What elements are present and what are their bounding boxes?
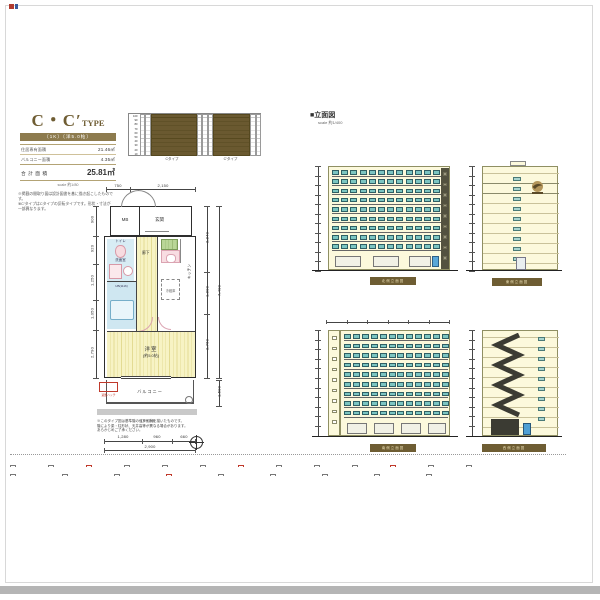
window-cell [424,334,431,339]
legend-item: ・・・・・・・・・・ [426,474,469,476]
legend-item: ・・・・・・・・・・ [10,474,53,476]
dim-left-5: 2,790 [90,343,95,363]
tick-mark [315,397,321,398]
ground-opening [373,256,399,267]
window-cell [387,235,394,240]
railing-line [344,369,448,370]
registration-mark-blue [15,4,18,9]
window-cell [362,363,369,368]
window-cell [369,226,376,231]
dim-tick [204,272,210,273]
tick-mark [469,349,475,350]
window-cell [371,372,378,377]
window-cell [362,392,369,397]
tick-mark [315,261,321,262]
window-cell [332,368,337,372]
railing-line [332,176,442,177]
compass-icon [189,435,204,450]
window-cell [332,198,339,203]
balcony-label: バルコニー [107,389,193,395]
window-cell [396,244,403,249]
entrance-door [432,256,439,267]
tick-mark [469,388,475,389]
tick-mark [469,233,475,234]
stove [161,239,178,250]
railing-line [332,250,442,251]
window-cell [396,170,403,175]
tick-mark [315,416,321,417]
window-cell [424,207,431,212]
window-cell [380,411,387,416]
window-cell [415,392,422,397]
level-rail [318,330,319,436]
window-cell [353,382,360,387]
plan-type-title-main: C・C′ [31,111,81,130]
window-cell [406,334,413,339]
dim-tick [204,314,210,315]
tick-mark [315,378,321,379]
window-cell [442,392,449,397]
tick-mark [315,242,321,243]
window-cell [396,198,403,203]
window-cell [350,217,357,222]
level-rail [472,166,473,270]
ground-line [312,270,458,271]
window-cell [433,344,440,349]
spec-total-row: 合 計 面 積 25.81㎡ [20,165,116,181]
window-cell [433,217,440,222]
spec-label: バルコニー面積 [21,157,50,163]
window-cell [433,226,440,231]
washbasin [123,266,133,276]
western-room: 洋室 (約5.0帖) [107,331,195,377]
window-cell [353,344,360,349]
spec-row: 住居専有面積 21.46㎡ [20,145,116,155]
window-grid [344,334,448,421]
window-cell [424,353,431,358]
plan-type-title: C・C′TYPE [18,106,118,131]
window-cell [371,382,378,387]
railing-line [332,232,442,233]
railing-line [344,340,448,341]
legend-symbol-icon [426,474,432,476]
window-cell [406,344,413,349]
window-cell [538,347,545,351]
window-cell [415,334,422,339]
plan-type-title-suffix: TYPE [82,118,105,128]
dim-line-top [106,189,196,190]
window-cell [397,392,404,397]
legend-symbol-icon [322,474,328,476]
window-cell [406,198,413,203]
railing-line [332,185,442,186]
window-cell [443,256,447,260]
window-cell [397,344,404,349]
window-cell [397,334,404,339]
tick-mark [315,176,321,177]
window-cell [350,189,357,194]
legend-label: ・・・・・・・・・・ [434,475,469,476]
window-cell [442,411,449,416]
key-plan-floor-label: 1F [129,152,139,156]
window-cell [397,382,404,387]
fridge-space: 冷蔵庫 [161,279,180,300]
spec-row: バルコニー面積 4.35㎡ [20,155,116,165]
registration-mark-red [9,4,14,9]
window-cell [406,363,413,368]
window-cell [371,401,378,406]
window-cell [380,344,387,349]
window-cell [378,198,385,203]
window-cell [387,226,394,231]
window-cell [360,217,367,222]
legend-item: ・・・・・・・・・・ [374,474,417,476]
window-cell [353,411,360,416]
tick-mark [408,320,409,324]
window-cell [369,170,376,175]
window-cell [406,372,413,377]
entrance-door-arc-right [138,190,156,207]
window-cell [424,226,431,231]
window-cell [443,235,447,239]
window-cell [344,382,351,387]
window-cell [415,401,422,406]
stair-tower [328,330,340,436]
legend-symbol-icon [114,474,120,476]
legend-item: ・・・・・・・・・・ [62,474,105,476]
window-cell [513,247,521,251]
legend-label: ・・・・・・・・・・ [278,475,313,476]
dim-left-2: 920 [90,239,95,259]
window-cell [350,244,357,249]
window-cell [538,407,545,411]
window-cell [387,198,394,203]
window-cell [362,353,369,358]
kitchen-label: キッチン [188,262,193,282]
legend-symbol-icon [218,474,224,476]
railing-line [344,349,448,350]
window-cell [332,389,337,393]
window-cell [396,189,403,194]
window-cell [387,179,394,184]
window-cell [387,189,394,194]
page-bottom-bar [0,586,600,594]
window-cell [371,353,378,358]
window-cell [396,235,403,240]
window-cell [389,344,396,349]
window-cell [538,367,545,371]
window-cell [332,410,337,414]
bathtub [110,300,134,320]
window-cell [378,189,385,194]
window-cell [341,244,348,249]
window-cell [538,357,545,361]
window-cell [433,411,440,416]
window-cell [380,363,387,368]
window-cell [442,344,449,349]
tick-mark [469,340,475,341]
window-cell [415,411,422,416]
window-cell [387,244,394,249]
window-cell [332,399,337,403]
window-cell [397,372,404,377]
dim-line-bottom-total [104,450,196,451]
window-cell [369,217,376,222]
dim-tick [216,206,222,207]
legend-label: ・・・・・・・・・・ [174,475,209,476]
floor-line [483,243,559,244]
room-window [121,376,171,379]
sanitary-room: 洗面室 [107,258,134,281]
window-cell [378,217,385,222]
window-cell [538,397,545,401]
window-cell [424,235,431,240]
railing-line [344,417,448,418]
window-cell [443,225,447,229]
window-cell [415,226,422,231]
elevation-caption: 西側立面図 [482,444,546,452]
window-cell [387,170,394,175]
brand-crest-logo [529,180,546,195]
window-cell [433,244,440,249]
elevation-caption: 南側立面図 [370,444,416,452]
toilet-fixture [115,245,126,258]
washing-machine [109,264,122,279]
spec-label: 住居専有面積 [21,147,46,153]
window-cell [538,337,545,341]
window-cell [397,401,404,406]
tick-mark [315,214,321,215]
balcony: バルコニー [106,380,194,404]
tick-mark [469,426,475,427]
key-plan-highlight-block-right [213,114,250,156]
window-cell [380,334,387,339]
legend-label: ・・・・・・・・・・ [226,475,261,476]
tick-mark [315,233,321,234]
floor-line [483,173,559,174]
dim-tick [204,206,210,207]
window-cell [387,217,394,222]
ground-opening [428,423,446,434]
window-cell [389,382,396,387]
tick-mark [315,426,321,427]
window-cell [433,363,440,368]
window-cell [369,198,376,203]
window-cell [332,357,337,361]
window-cell [362,401,369,406]
window-cell [433,179,440,184]
window-cell [362,372,369,377]
window-cell [360,170,367,175]
dim-right-3: 2,760 [205,335,210,355]
window-cell [513,237,521,241]
window-cell [350,170,357,175]
ground-opening [409,256,431,267]
window-cell [378,235,385,240]
window-cell [424,217,431,222]
stair-tower-strip [441,168,449,269]
floor-line [483,213,559,214]
window-cell [362,411,369,416]
tick-mark [315,368,321,369]
spec-total-value: 25.81㎡ [87,167,115,178]
window-cell [415,382,422,387]
dim-tick [93,264,99,265]
window-cell [538,417,545,421]
window-cell [341,217,348,222]
window-cell [332,347,337,351]
window-cell [344,372,351,377]
entrance-label: 玄関 [155,217,164,223]
window-cell [433,382,440,387]
window-cell [415,217,422,222]
tick-mark [469,166,475,167]
window-cell [406,189,413,194]
floor-line [483,223,559,224]
window-cell [371,411,378,416]
window-cell [341,170,348,175]
ground-opening [335,256,361,267]
dim-tick [93,236,99,237]
dim-line-bottom [104,441,196,442]
tick-mark [315,407,321,408]
dim-top-2: 2,150 [130,183,196,188]
railing-line [344,378,448,379]
window-cell [362,382,369,387]
dim-left-3: 1,250 [90,271,95,291]
railing-line [332,204,442,205]
balcony-drain [185,396,193,404]
elevation-caption: 北側立面図 [370,277,416,285]
window-cell [415,207,422,212]
railing-line [332,194,442,195]
window-cell [442,401,449,406]
legend-item: ・・・・・・・・・・ [218,474,261,476]
brochure-page: C・C′TYPE 〔1K〕〔洋5.0帖〕 住居専有面積 21.46㎡ バルコニー… [0,0,600,600]
window-cell [443,183,447,187]
window-cell [433,235,440,240]
railing-line [332,213,442,214]
level-rail [472,330,473,436]
plan-note-line: あらかじめご了承ください。 [97,428,209,433]
mb-wall [139,207,140,235]
ground-line [466,270,562,271]
band-line [483,183,559,184]
dim-tick [93,206,99,207]
window-cell [332,179,339,184]
elevation-west: 西側立面図 [466,318,562,458]
tick-mark [469,397,475,398]
window-cell [433,334,440,339]
ground-line [466,436,562,437]
dim-right-2: 1,800 [205,282,210,302]
floor-line [483,203,559,204]
window-cell [424,344,431,349]
dim-line-left [96,206,97,378]
sanitary-label: 洗面室 [107,258,134,263]
tick-mark [315,204,321,205]
tick-mark [469,223,475,224]
window-cell [350,179,357,184]
window-cell [442,382,449,387]
window-cell [378,179,385,184]
window-cell [442,353,449,358]
dim-top-1: 750 [106,183,130,188]
dim-tick [216,378,222,379]
window-cell [369,244,376,249]
window-cell [415,235,422,240]
window-cell [406,235,413,240]
window-cell [415,179,422,184]
sink-bowl [166,254,176,263]
window-cell [442,372,449,377]
window-cell [433,401,440,406]
bath-room: UB(1116) [107,281,136,329]
floor-line [483,253,559,254]
window-cell [369,235,376,240]
window-cell [341,207,348,212]
window-cell [406,382,413,387]
tick-mark [469,359,475,360]
legend-row: ・・・・・・・・・・・・・・・・・・・・・・・・・・・・・・・・・・・・・・・・… [10,458,566,467]
window-cell [341,226,348,231]
window-cell [406,207,413,212]
legend-label: ・・・・・・・・・・ [18,475,53,476]
window-cell [442,334,449,339]
glass-rail-strip: ガラス手摺 [97,409,197,415]
railing-line [332,222,442,223]
entrance-door [523,423,531,435]
window-cell [380,392,387,397]
window-cell [424,198,431,203]
window-cell [341,235,348,240]
legend-label: ・・・・・・・・・・ [122,475,157,476]
window-cell [389,363,396,368]
key-plan: 10F9F8F7F6F5F4F3F2F1F Cタイプ C′タイプ [128,113,268,165]
window-cell [360,207,367,212]
tick-mark [315,330,321,331]
fridge-label: 冷蔵庫 [162,288,179,293]
window-cell [360,198,367,203]
railing-line [344,407,448,408]
window-cell [362,334,369,339]
elevation-east: 東側立面図 [466,158,562,286]
spec-total-label: 合 計 面 積 [21,170,48,177]
window-cell [350,235,357,240]
tick-mark [315,340,321,341]
dim-bottom-2: 960 [142,434,172,439]
dim-right-1: 2,840 [205,228,210,248]
dim-left-1: 900 [90,210,95,230]
window-cell [332,170,339,175]
tick-mark [315,252,321,253]
tick-mark [469,176,475,177]
window-cell [353,392,360,397]
window-cell [442,363,449,368]
window-cell [378,226,385,231]
tick-mark [469,242,475,243]
window-cell [389,401,396,406]
window-cell [371,392,378,397]
escape-hatch-label: 避難ハッチ [102,393,116,397]
window-cell [406,217,413,222]
band-line [483,193,559,194]
window-cell [513,197,521,201]
window-cell [360,226,367,231]
window-cell [433,372,440,377]
ground-line [312,436,458,437]
dim-tick [204,378,210,379]
